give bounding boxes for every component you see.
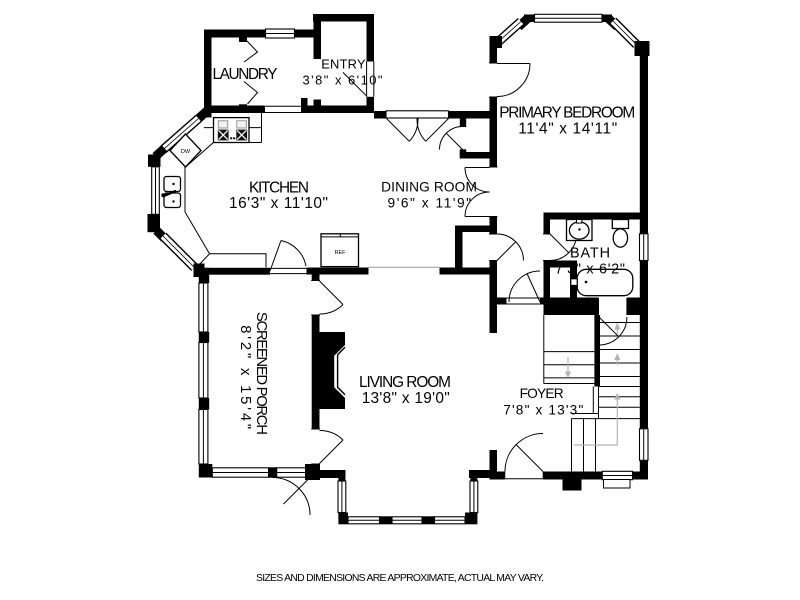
svg-text:KITCHEN: KITCHEN: [249, 179, 309, 196]
svg-text:DINING ROOM: DINING ROOM: [381, 179, 477, 194]
svg-text:LAUNDRY: LAUNDRY: [213, 66, 278, 83]
svg-text:7'3" x 6'2": 7'3" x 6'2": [555, 262, 625, 278]
svg-text:SIZES AND DIMENSIONS ARE APPRO: SIZES AND DIMENSIONS ARE APPROXIMATE, AC…: [256, 573, 544, 584]
svg-text:LIVING ROOM: LIVING ROOM: [359, 374, 451, 391]
svg-text:13'8" x 19'0": 13'8" x 19'0": [362, 390, 450, 407]
svg-text:ENTRY: ENTRY: [321, 57, 366, 72]
svg-text:PRIMARY BEDROOM: PRIMARY BEDROOM: [499, 104, 635, 121]
svg-text:DW: DW: [181, 149, 191, 155]
svg-text:11'4" x 14'11": 11'4" x 14'11": [518, 120, 617, 137]
svg-text:REF: REF: [335, 250, 346, 256]
svg-text:16'3" x 11'10": 16'3" x 11'10": [229, 195, 328, 212]
svg-text:3'8" x 6'10": 3'8" x 6'10": [303, 72, 383, 87]
svg-text:9'6" x 11'9": 9'6" x 11'9": [388, 195, 472, 210]
svg-text:BATH: BATH: [570, 245, 610, 261]
svg-text:FOYER: FOYER: [520, 386, 564, 401]
svg-text:7'8" x 13'3": 7'8" x 13'3": [503, 402, 583, 417]
svg-text:SCREENED PORCH: SCREENED PORCH: [253, 312, 269, 435]
